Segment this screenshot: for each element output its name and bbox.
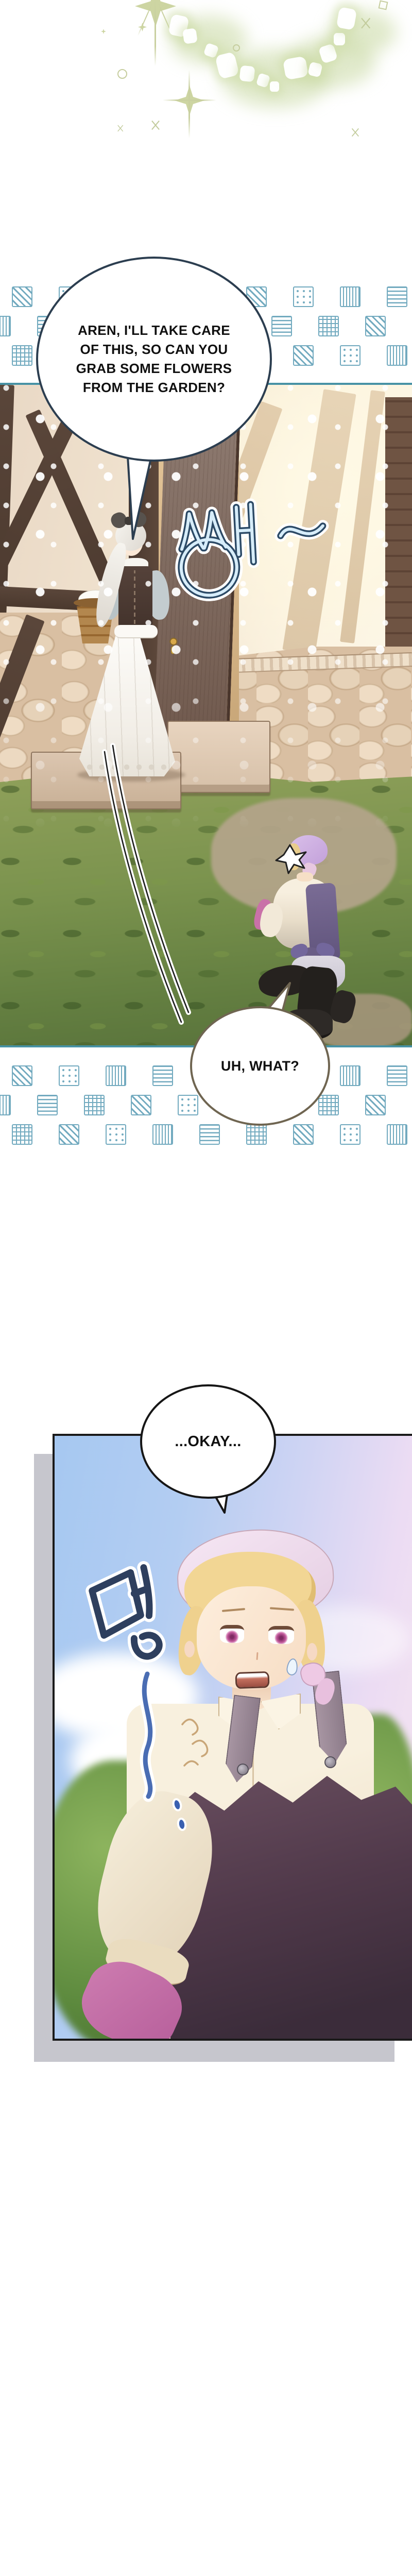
speech-bubble-uh-what: UH, WHAT?	[190, 1006, 330, 1126]
pattern-square-diag	[293, 1124, 314, 1145]
x-sparkle-icon	[358, 16, 371, 29]
bokeh-light	[182, 28, 198, 44]
sparkle-field	[0, 0, 412, 247]
panel-gardener-closeup: 멍	[53, 1434, 412, 2041]
x-sparkle-icon	[149, 120, 161, 131]
cross-star-ray	[163, 99, 216, 101]
speech-bubble-uh-what-text: UH, WHAT?	[221, 1057, 299, 1075]
square-sparkle-icon	[379, 1, 388, 10]
pattern-square-hstripes	[37, 1095, 58, 1115]
sfx-meong-glyph	[91, 1567, 160, 1660]
speech-bubble-request-text: AREN, I'LL TAKE CARE OF THIS, SO CAN YOU…	[76, 321, 232, 397]
panel2-fx-overlay	[55, 1436, 412, 2041]
pattern-square-diag	[12, 1065, 32, 1086]
pattern-square-vstripes	[340, 286, 360, 307]
sfx-sseng-glyph	[178, 501, 327, 597]
surprise-spark-icon	[276, 845, 306, 873]
pattern-square-diag	[131, 1095, 151, 1115]
pattern-square-grid	[12, 345, 32, 366]
star-sparkle-icon	[101, 29, 106, 34]
ring-sparkle-icon	[117, 69, 127, 79]
speech-bubble-okay-text: ...OKAY...	[175, 1433, 241, 1450]
pattern-square-grid	[246, 1124, 267, 1145]
pattern-square-dots	[340, 345, 360, 366]
x-sparkle-icon	[350, 127, 360, 138]
ring-sparkle-icon	[233, 44, 240, 52]
x-sparkle-icon	[116, 124, 124, 132]
pattern-square-dots	[293, 286, 314, 307]
pattern-square-grid	[12, 1124, 32, 1145]
sfx-daze-drops	[172, 1799, 186, 1831]
panel-cottage-garden: 썡~	[0, 383, 412, 1047]
sfx-daze-line	[144, 1674, 150, 1797]
bokeh-light	[270, 81, 279, 92]
pattern-square-diag	[365, 316, 386, 336]
pattern-square-vstripes	[0, 316, 11, 336]
pattern-square-diag	[59, 1124, 79, 1145]
pattern-square-hstripes	[152, 1065, 173, 1086]
pattern-square-hstripes	[199, 1124, 220, 1145]
pattern-square-hstripes	[387, 1065, 407, 1086]
pattern-square-hstripes	[271, 316, 292, 336]
pattern-square-dots	[340, 1124, 360, 1145]
pattern-square-vstripes	[387, 345, 407, 366]
pattern-square-grid	[84, 1095, 105, 1115]
speech-bubble-okay: ...OKAY...	[140, 1384, 276, 1499]
pattern-square-vstripes	[0, 1095, 11, 1115]
pattern-square-dots	[59, 1065, 79, 1086]
starburst-ray	[154, 0, 156, 66]
motion-lines	[105, 745, 188, 1022]
pattern-square-diag	[12, 286, 32, 307]
pattern-square-hstripes	[387, 286, 407, 307]
pattern-square-vstripes	[387, 1124, 407, 1145]
panel1-fx-overlay	[0, 385, 412, 1047]
speech-bubble-request: AREN, I'LL TAKE CARE OF THIS, SO CAN YOU…	[36, 257, 272, 462]
pattern-square-diag	[293, 345, 314, 366]
pattern-square-diag	[365, 1095, 386, 1115]
webtoon-page: 썡~	[0, 0, 412, 2576]
bokeh-light	[334, 33, 345, 45]
pattern-square-vstripes	[340, 1065, 360, 1086]
pattern-square-dots	[106, 1124, 126, 1145]
embroidery-curls	[182, 1719, 208, 1766]
bokeh-light	[239, 65, 255, 82]
cross-star-ray	[188, 70, 190, 138]
pattern-square-dots	[178, 1095, 198, 1115]
pattern-square-vstripes	[152, 1124, 173, 1145]
pattern-square-grid	[318, 316, 339, 336]
pattern-square-grid	[318, 1095, 339, 1115]
pattern-square-vstripes	[106, 1065, 126, 1086]
